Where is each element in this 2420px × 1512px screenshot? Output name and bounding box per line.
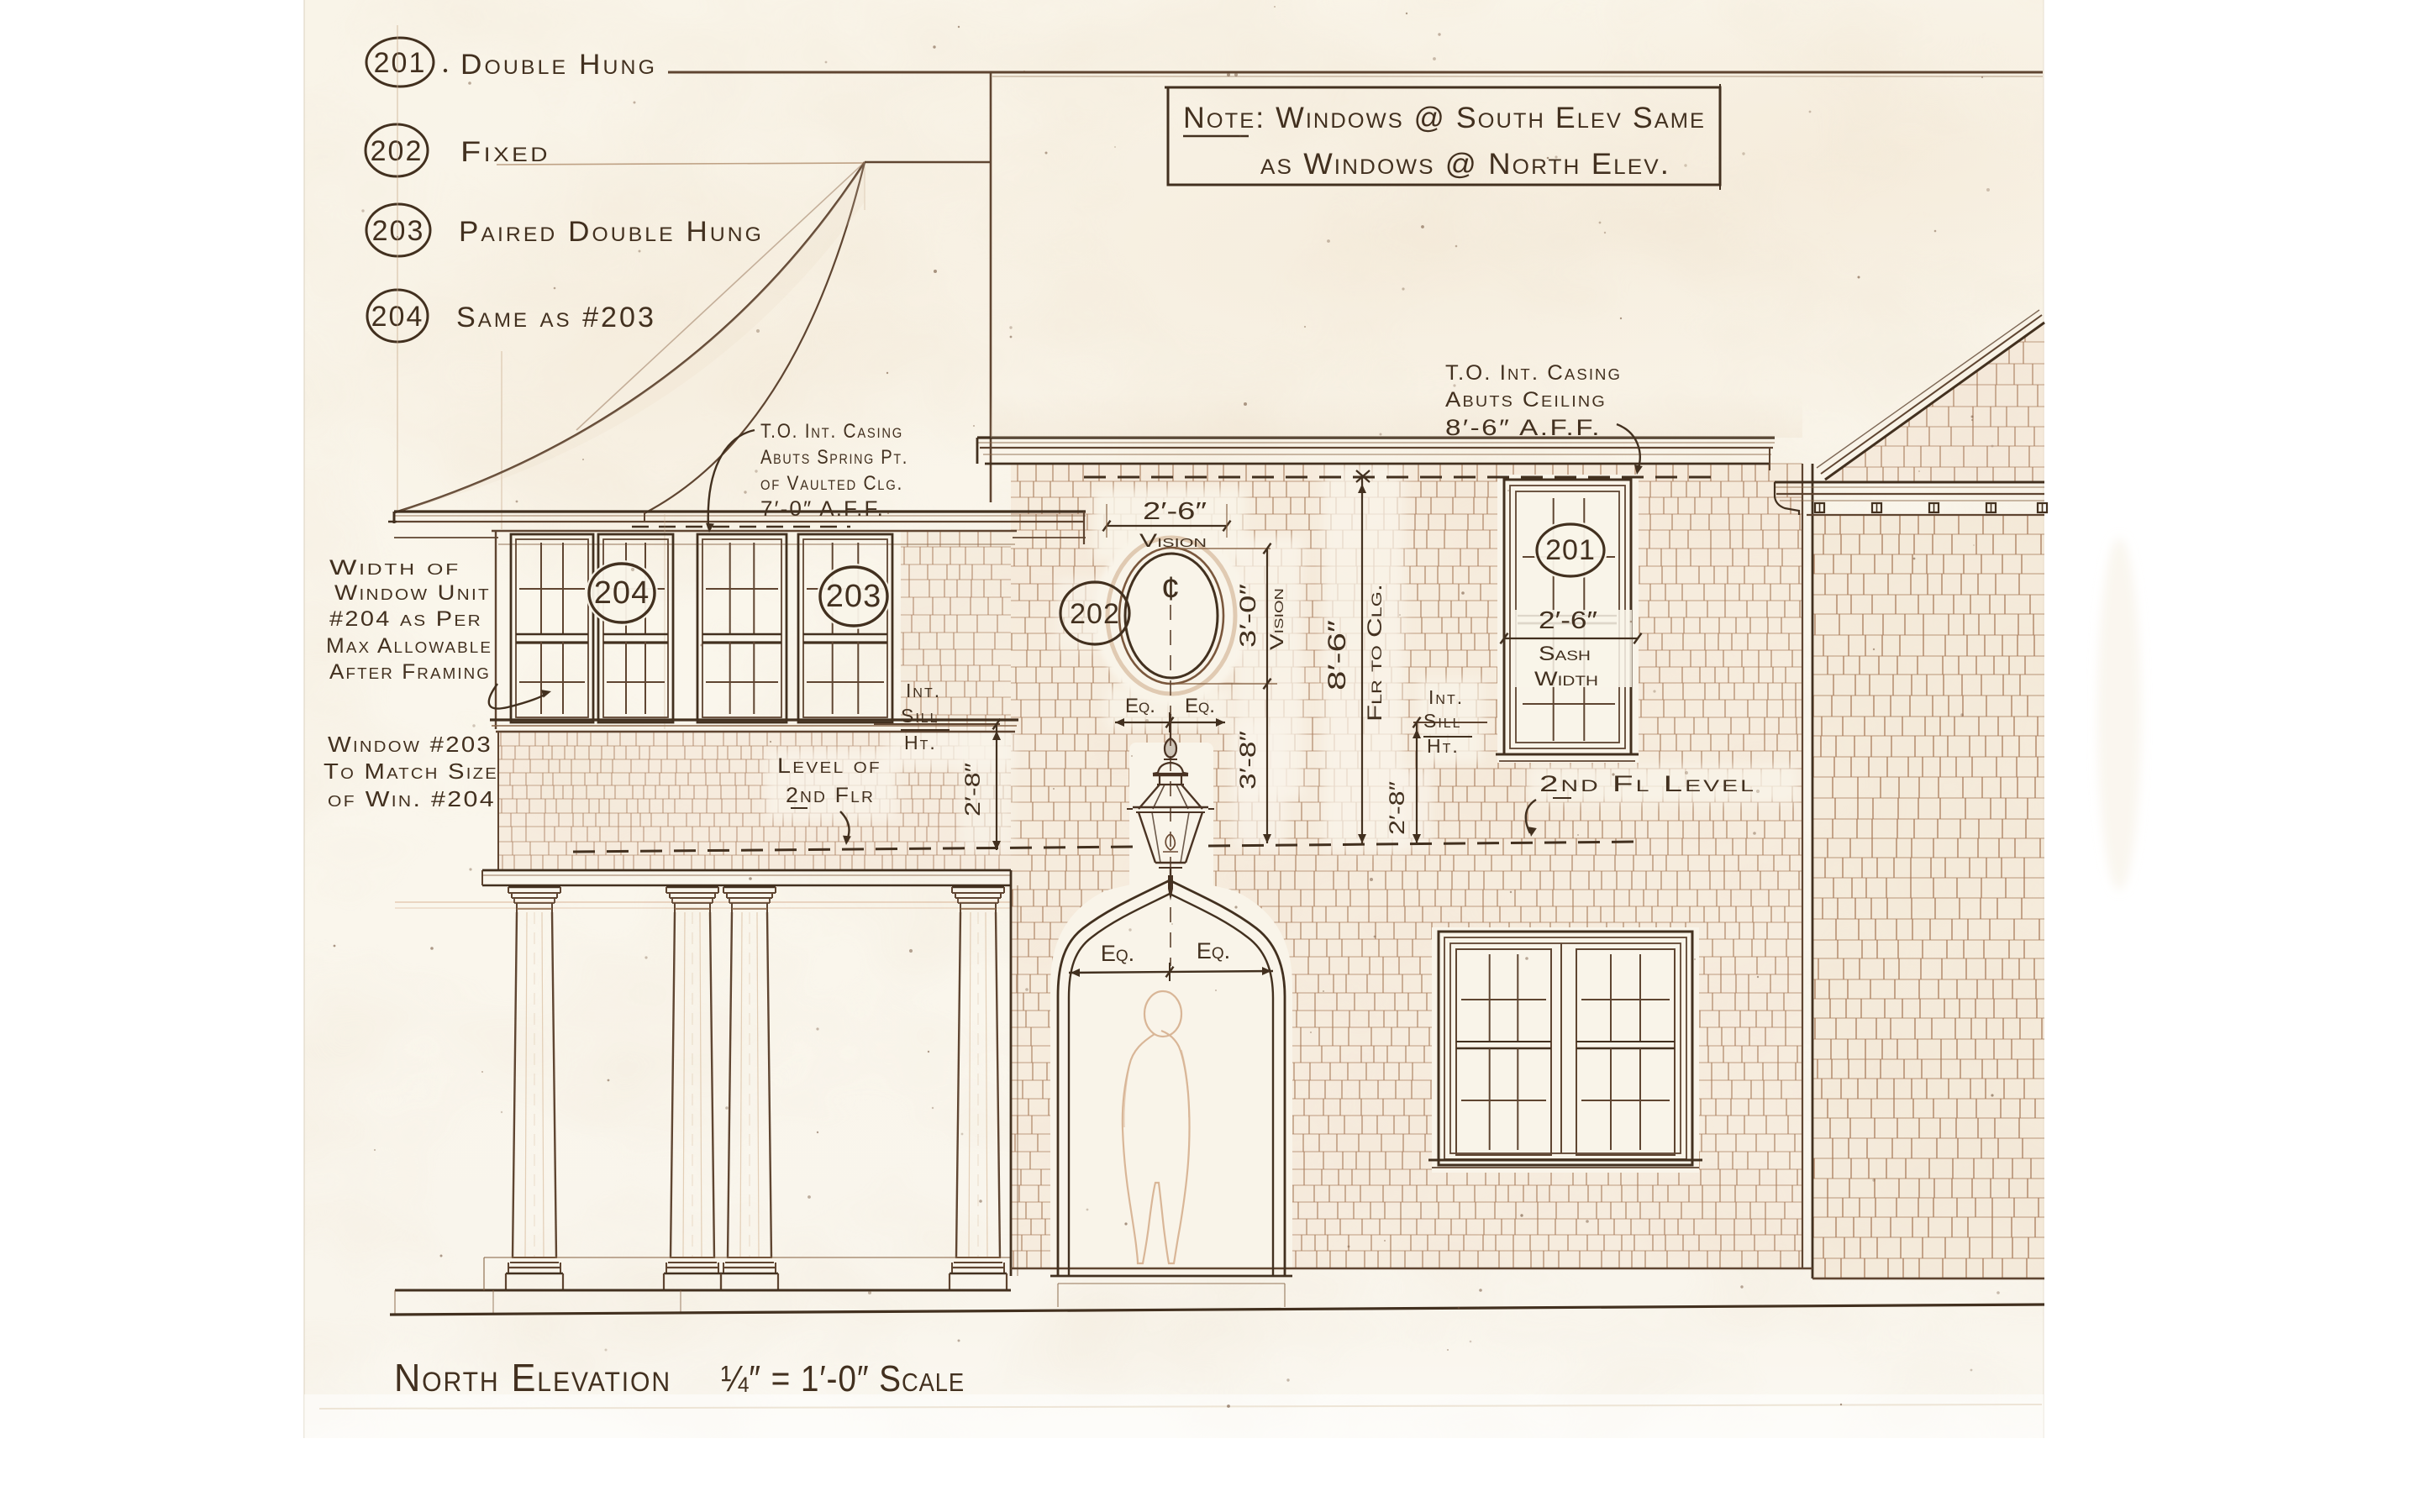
svg-text:Int.: Int.: [1428, 686, 1464, 708]
svg-text:3′-0″: 3′-0″: [1235, 583, 1260, 648]
svg-text:Same as #203: Same as #203: [456, 302, 656, 333]
svg-text:#204 as Per: #204 as Per: [329, 607, 482, 631]
svg-text:Sill: Sill: [1423, 710, 1462, 732]
svg-text:Int.: Int.: [906, 680, 941, 701]
svg-text:of Vaulted Clg.: of Vaulted Clg.: [760, 472, 903, 495]
svg-text:Paired Double Hung: Paired Double Hung: [459, 216, 764, 248]
svg-text:Level of: Level of: [777, 754, 881, 778]
svg-text:2′-6″: 2′-6″: [1143, 498, 1207, 525]
svg-text:Max Allowable: Max Allowable: [326, 634, 492, 658]
svg-text:201: 201: [1545, 534, 1596, 566]
svg-text:203: 203: [372, 215, 425, 247]
svg-text:Ht.: Ht.: [1427, 735, 1460, 757]
svg-text:2′-8″: 2′-8″: [1386, 781, 1409, 835]
svg-text:Double Hung: Double Hung: [460, 49, 657, 81]
svg-text:Eq.: Eq.: [1197, 938, 1230, 963]
svg-text:Width of: Width of: [329, 556, 460, 580]
svg-text:2nd Fl Level: 2nd Fl Level: [1539, 771, 1756, 796]
svg-text:Note: Windows @ South Elev Sam: Note: Windows @ South Elev Same: [1183, 102, 1706, 134]
svg-text:Vision: Vision: [1266, 588, 1287, 650]
svg-text:Eq.: Eq.: [1185, 695, 1215, 717]
svg-text:Eq.: Eq.: [1101, 941, 1134, 966]
svg-text:201: 201: [374, 47, 427, 79]
svg-text:202: 202: [371, 135, 423, 167]
svg-text:Flr to Clg.: Flr to Clg.: [1364, 584, 1386, 722]
svg-text:8′-6″: 8′-6″: [1323, 619, 1351, 690]
svg-text:2nd Flr: 2nd Flr: [786, 784, 875, 807]
svg-text:Window Unit: Window Unit: [334, 581, 491, 605]
svg-text:203: 203: [826, 579, 881, 614]
svg-text:3′-8″: 3′-8″: [1235, 730, 1260, 790]
svg-text:Width: Width: [1534, 668, 1598, 690]
svg-text:Abuts Spring Pt.: Abuts Spring Pt.: [760, 446, 908, 469]
svg-text:204: 204: [594, 575, 650, 611]
svg-text:Ht.: Ht.: [904, 732, 937, 753]
svg-text:Sash: Sash: [1539, 643, 1591, 665]
svg-text:202: 202: [1070, 598, 1120, 630]
svg-text:Abuts Ceiling: Abuts Ceiling: [1445, 388, 1607, 412]
svg-text:2′-8″: 2′-8″: [961, 763, 985, 816]
svg-text:7′-0″ A.F.F.: 7′-0″ A.F.F.: [760, 497, 885, 521]
svg-text:¼″ = 1′-0″ Scale: ¼″ = 1′-0″ Scale: [721, 1358, 965, 1399]
svg-text:After Framing: After Framing: [329, 660, 491, 684]
svg-text:Window #203: Window #203: [328, 732, 492, 757]
svg-text:To Match Size: To Match Size: [324, 759, 498, 784]
svg-text:8′-6″ A.F.F.: 8′-6″ A.F.F.: [1445, 415, 1602, 440]
svg-text:2′-6″: 2′-6″: [1539, 607, 1597, 634]
svg-text:North Elevation: North Elevation: [394, 1356, 671, 1399]
svg-text:T.O. Int. Casing: T.O. Int. Casing: [1445, 361, 1622, 385]
svg-text:Eq.: Eq.: [1125, 695, 1155, 717]
svg-text:as Windows @ North Elev.: as Windows @ North Elev.: [1260, 148, 1670, 181]
svg-text:T.O. Int. Casing: T.O. Int. Casing: [760, 420, 903, 443]
svg-text:of Win. #204: of Win. #204: [328, 786, 496, 811]
svg-text:Fixed: Fixed: [460, 136, 550, 168]
svg-text:¢: ¢: [1161, 570, 1180, 607]
